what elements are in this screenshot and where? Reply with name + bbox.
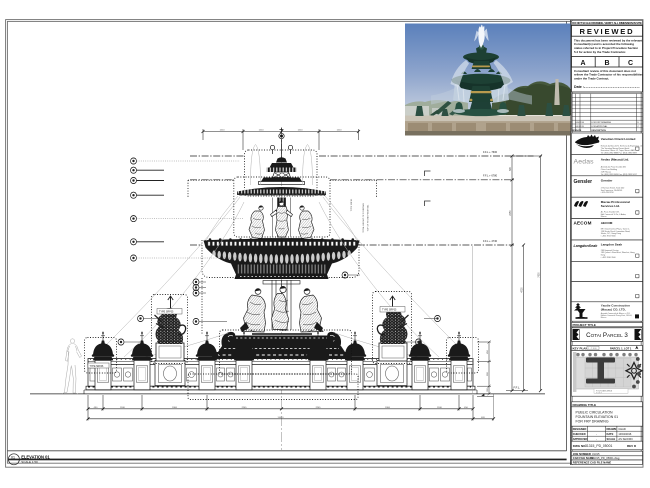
svg-text:AECOM: AECOM bbox=[574, 221, 592, 226]
svg-text:DESCRIPTION: DESCRIPTION bbox=[592, 130, 607, 132]
svg-text:DO NOT SCALE DRAWING. VERIFY A: DO NOT SCALE DRAWING. VERIFY ALL DIMENSI… bbox=[572, 21, 642, 25]
svg-text:31315_PD_05001: 31315_PD_05001 bbox=[585, 444, 612, 448]
svg-text:11670: 11670 bbox=[278, 417, 285, 419]
svg-text:PROJECT TITLE: PROJECT TITLE bbox=[573, 323, 596, 327]
svg-text:(Macau) CO, LTD,: (Macau) CO, LTD, bbox=[601, 307, 626, 311]
svg-text:B: B bbox=[604, 60, 609, 67]
svg-text:Venetian Orient Limited: Venetian Orient Limited bbox=[601, 137, 636, 141]
svg-text:1960: 1960 bbox=[385, 407, 391, 409]
svg-text:Gensler: Gensler bbox=[601, 178, 613, 182]
svg-text:COTAI PARCEL 3: COTAI PARCEL 3 bbox=[586, 332, 628, 339]
svg-text:JOB NUMBER: JOB NUMBER bbox=[573, 452, 591, 456]
svg-text:183 Queen's Road East, Wanchai: 183 Queen's Road East, Wanchai, Hong bbox=[601, 251, 635, 254]
svg-text:KEY PLAN: KEY PLAN bbox=[573, 346, 588, 350]
svg-text:t +852 2830 3500: t +852 2830 3500 bbox=[601, 256, 616, 259]
svg-text:2245: 2245 bbox=[316, 407, 322, 409]
svg-text:REVIEWED: REVIEWED bbox=[580, 27, 635, 36]
svg-text:TOTAL HEIGHT OF FOUNTAIN: TOTAL HEIGHT OF FOUNTAIN bbox=[362, 203, 365, 233]
svg-text:2050: 2050 bbox=[510, 210, 512, 216]
svg-text:SCALE 1:50: SCALE 1:50 bbox=[21, 460, 38, 464]
svg-text:FOR FRP DRAWING: FOR FRP DRAWING bbox=[576, 420, 609, 424]
svg-text:FOR FRP DRAWING: FOR FRP DRAWING bbox=[592, 121, 612, 124]
svg-text:1210: 1210 bbox=[337, 129, 343, 131]
svg-text:TOP OF STONE PEDESTAL: TOP OF STONE PEDESTAL bbox=[367, 204, 370, 231]
svg-text:Services Ltd.: Services Ltd. bbox=[601, 204, 620, 208]
svg-text:DRAWING TITLE: DRAWING TITLE bbox=[573, 403, 597, 407]
svg-text:DESIGNED: DESIGNED bbox=[573, 427, 587, 431]
svg-text:1210: 1210 bbox=[259, 129, 265, 131]
svg-text:APPROVED: APPROVED bbox=[573, 437, 588, 441]
svg-text:DRAWN: DRAWN bbox=[607, 427, 617, 431]
svg-text:F.F.L.: F.F.L. bbox=[514, 386, 521, 390]
svg-text:DATE: DATE bbox=[607, 432, 614, 436]
svg-text:CHECKED: CHECKED bbox=[573, 432, 586, 436]
svg-text:SCALE: SCALE bbox=[596, 391, 603, 394]
svg-text:Langdon Seah: Langdon Seah bbox=[601, 242, 622, 246]
svg-text:TYPE SRF05: TYPE SRF05 bbox=[159, 311, 174, 314]
svg-text:ELEVATION 01: ELEVATION 01 bbox=[21, 454, 50, 459]
svg-text:Aedas (Macau) Ltd.: Aedas (Macau) Ltd. bbox=[601, 157, 630, 161]
svg-text:TYPE SRF01: TYPE SRF01 bbox=[351, 198, 353, 211]
svg-text:AS SHOWN: AS SHOWN bbox=[618, 437, 632, 441]
svg-text:F.F.L + 7600: F.F.L + 7600 bbox=[483, 150, 498, 154]
svg-text:AECOM: AECOM bbox=[601, 221, 613, 225]
svg-text:CAD FILE NAME: CAD FILE NAME bbox=[573, 456, 594, 460]
svg-text:DATE: DATE bbox=[576, 129, 582, 132]
svg-text:TYPE SRF05: TYPE SRF05 bbox=[382, 309, 397, 312]
svg-text:PUBLIC CIRCULATION: PUBLIC CIRCULATION bbox=[576, 410, 614, 414]
svg-text:REV D: REV D bbox=[627, 444, 637, 448]
svg-text:2245: 2245 bbox=[242, 407, 248, 409]
svg-text:4730: 4730 bbox=[522, 287, 524, 293]
svg-text:Date :: Date : bbox=[574, 85, 584, 89]
svg-text:CHAD: CHAD bbox=[618, 427, 625, 431]
svg-text:1 : 7.500: 1 : 7.500 bbox=[588, 348, 597, 350]
svg-text:FOUNTAIN ELEVATION 01: FOUNTAIN ELEVATION 01 bbox=[576, 415, 619, 419]
svg-text:31315: 31315 bbox=[592, 452, 600, 456]
svg-text:PARCEL 1, LOT 1: PARCEL 1, LOT 1 bbox=[610, 346, 632, 350]
svg-text:-: - bbox=[596, 438, 597, 441]
svg-text:1180: 1180 bbox=[120, 407, 125, 409]
svg-text:-: - bbox=[596, 433, 597, 436]
svg-text:1210: 1210 bbox=[298, 129, 304, 131]
svg-text:Aedas: Aedas bbox=[574, 159, 595, 166]
svg-text:Gensler: Gensler bbox=[574, 179, 593, 185]
svg-text:03/12/15: 03/12/15 bbox=[576, 126, 585, 128]
svg-text:C: C bbox=[628, 60, 633, 67]
svg-text:5.4 for action by the Trade Co: 5.4 for action by the Trade Contractor. bbox=[574, 50, 626, 54]
svg-text:Macau: Macau bbox=[601, 216, 607, 218]
svg-text:1210: 1210 bbox=[220, 129, 226, 131]
svg-text:7600: 7600 bbox=[539, 272, 541, 278]
svg-text:FOR APPROVAL: FOR APPROVAL bbox=[592, 125, 609, 128]
svg-text:under the Trade Contract.: under the Trade Contract. bbox=[574, 76, 609, 80]
svg-text:REFERENCE CAD FILE NAME: REFERENCE CAD FILE NAME bbox=[573, 460, 612, 464]
svg-text:LangdonSeah: LangdonSeah bbox=[574, 244, 599, 248]
svg-text:SCALE: SCALE bbox=[607, 437, 616, 441]
svg-text:A: A bbox=[580, 60, 585, 67]
svg-text:F.F.L + 6780: F.F.L + 6780 bbox=[483, 174, 498, 178]
svg-text:05/02/16: 05/02/16 bbox=[576, 122, 585, 124]
svg-text:t +852 3922 9000: t +852 3922 9000 bbox=[601, 235, 616, 238]
svg-text:TYPE SRF06: TYPE SRF06 bbox=[90, 366, 105, 368]
svg-text:13/04/2016: 13/04/2016 bbox=[618, 432, 632, 436]
svg-text:31315_PD_05001.dwg: 31315_PD_05001.dwg bbox=[592, 456, 620, 460]
svg-text:1960: 1960 bbox=[172, 407, 178, 409]
svg-text:t 415.433.3700: t 415.433.3700 bbox=[601, 191, 614, 194]
svg-text:F.F.L + 4730: F.F.L + 4730 bbox=[483, 239, 498, 243]
svg-text:Macau: Macau bbox=[601, 317, 606, 319]
svg-text:1180: 1180 bbox=[437, 407, 442, 409]
